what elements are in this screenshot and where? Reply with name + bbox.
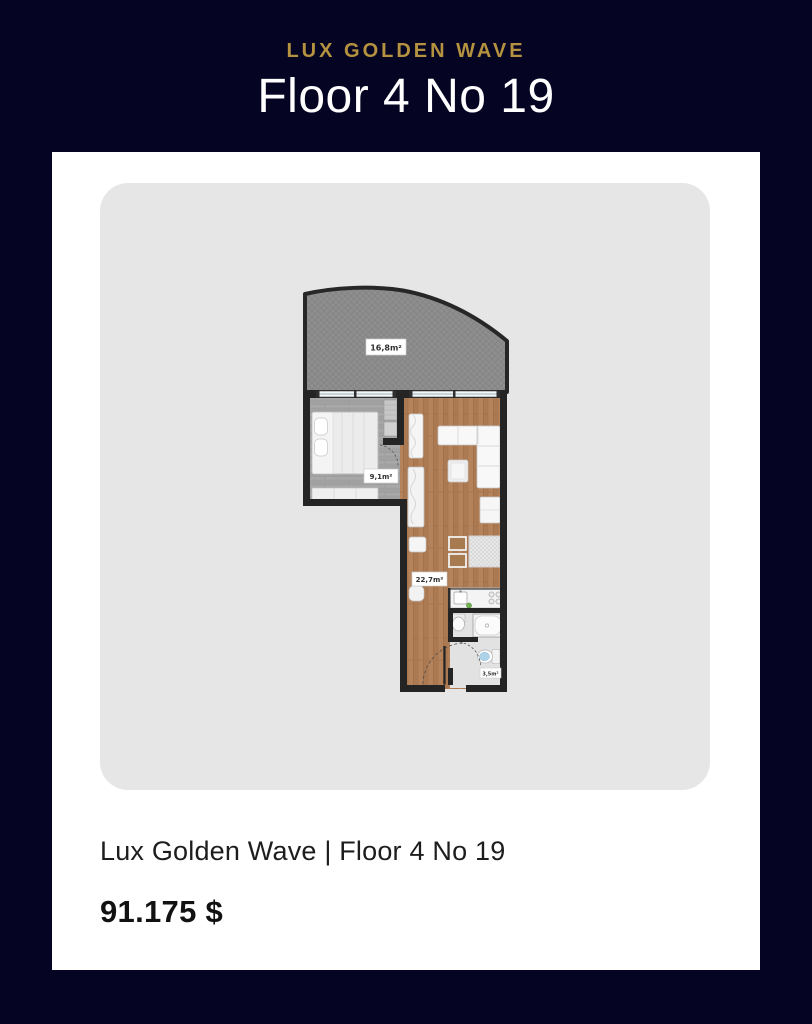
room-area-label-terrace: 16,8m²: [366, 339, 406, 355]
room-area-label-bedroom: 9,1m²: [364, 469, 398, 483]
svg-text:9,1m²: 9,1m²: [370, 473, 393, 481]
room-area-label-living: 22,7m²: [412, 572, 447, 586]
wardrobe: [408, 467, 424, 527]
svg-text:3,5m²: 3,5m²: [482, 672, 498, 678]
plant: [466, 603, 471, 608]
listing-caption: Lux Golden Wave | Floor 4 No 19: [100, 836, 505, 867]
window: [410, 391, 499, 398]
floorplan-panel: 16,8m² 9,1m² 22,7m² 3,5m²: [100, 183, 710, 790]
listing-card: 16,8m² 9,1m² 22,7m² 3,5m² Lux Golden Wav…: [52, 152, 760, 970]
kitchen-sink: [454, 592, 467, 604]
brand-name: LUX GOLDEN WAVE: [0, 40, 812, 63]
floor-plan: 16,8m² 9,1m² 22,7m² 3,5m²: [303, 284, 512, 697]
page-background: { "header": { "brand": "LUX GOLDEN WAVE"…: [0, 0, 812, 1024]
svg-text:16,8m²: 16,8m²: [370, 344, 402, 353]
page-header: LUX GOLDEN WAVE Floor 4 No 19: [0, 0, 812, 124]
coffee-table: [448, 460, 468, 482]
window: [317, 391, 395, 398]
bathroom-sink: [452, 614, 465, 631]
kitchen-counter: [450, 588, 505, 608]
room-area-label-bathroom: 3,5m²: [480, 668, 501, 678]
stool: [409, 586, 424, 601]
listing-price: 91.175 $: [100, 894, 223, 930]
curtain: [409, 414, 423, 458]
shower: [473, 614, 503, 637]
rug: [469, 536, 500, 567]
closet-shelves: [384, 400, 397, 436]
tv-unit: [480, 497, 500, 523]
toilet: [478, 650, 501, 664]
page-title: Floor 4 No 19: [0, 69, 812, 124]
bed: [312, 412, 378, 474]
svg-text:22,7m²: 22,7m²: [416, 576, 444, 584]
side-table: [409, 537, 426, 552]
